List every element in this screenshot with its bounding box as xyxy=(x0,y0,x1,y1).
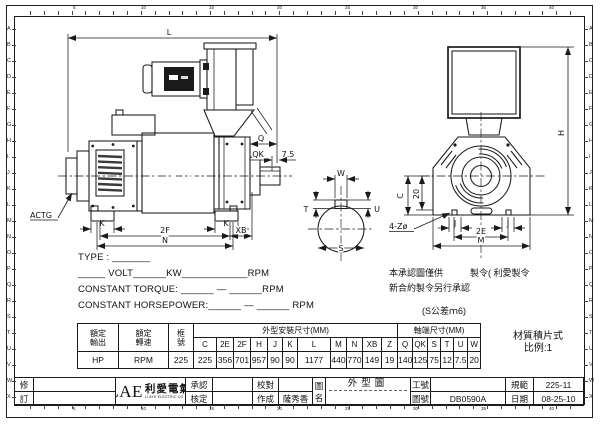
made-by-label: 作成 xyxy=(253,392,279,406)
value-c: 225 xyxy=(194,352,217,369)
ruler-tick xyxy=(556,405,557,409)
dim-label-7-5: 7.5 xyxy=(282,150,295,159)
shaft-cross-section: W T U S xyxy=(303,169,381,262)
ruler-tick xyxy=(584,285,588,286)
ruler-tick xyxy=(432,405,433,409)
ruler-tick xyxy=(182,11,183,15)
ruler-number: 25 xyxy=(345,406,350,411)
ruler-tick xyxy=(584,45,588,46)
header-rated-output: 額定 輸出 xyxy=(78,324,119,352)
ruler-letter: E xyxy=(589,90,593,96)
ruler-letter: R xyxy=(589,298,593,304)
ruler-tick xyxy=(12,381,16,382)
ruler-tick xyxy=(584,125,588,126)
ruler-tick xyxy=(44,11,45,15)
ruler-letter: I xyxy=(589,154,591,160)
ruler-tick xyxy=(12,45,16,46)
logo-lae: LAE xyxy=(116,383,143,400)
title-block: 修 LAE 利愛電氣 LI AYE ELECTRIC CO.,LTD 承認 校對… xyxy=(14,377,584,406)
ruler-tick xyxy=(12,93,16,94)
ruler-tick xyxy=(252,11,253,15)
col-2e: 2E xyxy=(217,338,234,352)
spec-line-type: TYPE : _______ xyxy=(78,252,151,263)
ruler-number: 20 xyxy=(277,5,282,10)
drawing-no-label: 圖號 xyxy=(411,392,431,406)
ruler-tick xyxy=(584,237,588,238)
dim-label-4z: 4-Zø xyxy=(389,222,407,231)
ruler-tick xyxy=(570,11,571,15)
ruler-tick xyxy=(487,405,488,409)
ruler-tick xyxy=(12,61,16,62)
ruler-tick xyxy=(459,11,460,15)
ruler-letter: B xyxy=(7,42,11,48)
col-k: K xyxy=(283,338,298,352)
col-z: Z xyxy=(382,338,398,352)
ruler-tick xyxy=(501,405,502,409)
ruler-letter: U xyxy=(7,346,11,352)
value-m: 440 xyxy=(331,352,347,369)
ruler-tick xyxy=(515,405,516,409)
revision-field-bottom xyxy=(34,392,116,406)
approval-note-line1: 本承認圖僅供 製令( 利愛製令 xyxy=(389,266,530,279)
ruler-letter: J xyxy=(589,170,592,176)
header-outline-dims: 外型安裝尺寸(MM) xyxy=(194,324,398,338)
col-h: H xyxy=(251,338,268,352)
tolerance-note: (S公差ｍ6) xyxy=(422,304,466,317)
value-h: 957 xyxy=(251,352,268,369)
col-t: T xyxy=(441,338,454,352)
spec-line-constant-horsepower: CONSTANT HORSEPOWER:______ — ______ RPM xyxy=(78,300,314,311)
dim-label-j-left: J xyxy=(453,219,456,228)
terminal-box xyxy=(112,115,155,135)
ruler-tick xyxy=(570,405,571,409)
spec-line-volt-kw-rpm: _____ VOLT______KW____________RPM xyxy=(78,268,269,279)
ruler-tick xyxy=(362,405,363,409)
col-qk: QK xyxy=(413,338,428,352)
ruler-tick xyxy=(99,405,100,409)
ruler-tick xyxy=(404,11,405,15)
actg-label: ACTG xyxy=(30,211,52,220)
ruler-tick xyxy=(12,29,16,30)
company-logo: LAE 利愛電氣 LI AYE ELECTRIC CO.,LTD xyxy=(116,378,186,406)
value-l: 1177 xyxy=(298,352,331,369)
ruler-tick xyxy=(321,405,322,409)
ruler-letter: A xyxy=(589,26,593,32)
ruler-tick xyxy=(238,405,239,409)
ruler-letter: F xyxy=(589,106,592,112)
approval-note-line2: 新合約製令另行承認 xyxy=(389,281,470,294)
ruler-tick xyxy=(459,405,460,409)
ruler-tick xyxy=(127,405,128,409)
ruler-letter: B xyxy=(589,42,593,48)
ruler-number: 40 xyxy=(549,5,554,10)
drawing-name-value: 外型圖 xyxy=(326,378,410,390)
ruler-tick xyxy=(404,405,405,409)
ruler-letter: O xyxy=(589,250,593,256)
ruler-letter: G xyxy=(589,122,593,128)
value-k: 90 xyxy=(283,352,298,369)
stator-laminations xyxy=(142,133,214,213)
ruler-tick xyxy=(584,333,588,334)
ruler-tick xyxy=(418,11,419,15)
revision-label-top: 修 xyxy=(15,378,34,392)
foot-hole-right xyxy=(506,210,511,215)
ruler-tick xyxy=(584,365,588,366)
ruler-letter: F xyxy=(7,106,10,112)
ruler-tick xyxy=(169,405,170,409)
ruler-tick xyxy=(376,405,377,409)
ruler-tick xyxy=(584,109,588,110)
ruler-tick xyxy=(584,141,588,142)
ruler-tick xyxy=(12,125,16,126)
fan-motor-cap xyxy=(143,65,152,93)
ruler-tick xyxy=(556,11,557,15)
proof-label: 校對 xyxy=(253,378,279,392)
ruler-tick xyxy=(542,405,543,409)
ruler-tick xyxy=(584,317,588,318)
logo-company-name-en: LI AYE ELECTRIC CO.,LTD xyxy=(145,395,186,399)
ruler-tick xyxy=(515,11,516,15)
ruler-tick xyxy=(12,285,16,286)
ruler-tick xyxy=(30,11,31,15)
ruler-tick xyxy=(584,253,588,254)
ruler-number: 35 xyxy=(481,5,486,10)
col-m: M xyxy=(331,338,347,352)
ruler-letter: D xyxy=(589,74,593,80)
col-w: W xyxy=(468,338,481,352)
ruler-tick xyxy=(113,11,114,15)
vent-louvers xyxy=(98,156,122,191)
ruler-tick xyxy=(224,405,225,409)
ruler-tick xyxy=(252,405,253,409)
ruler-tick xyxy=(12,141,16,142)
ruler-tick xyxy=(487,11,488,15)
col-q: Q xyxy=(398,338,413,352)
ruler-number: 35 xyxy=(481,406,486,411)
ruler-tick xyxy=(12,205,16,206)
material-note: 材質積片式 xyxy=(498,331,578,343)
ruler-tick xyxy=(265,11,266,15)
ruler-tick xyxy=(12,301,16,302)
ruler-tick xyxy=(390,405,391,409)
ruler-tick xyxy=(44,405,45,409)
dim-label-k-right: K xyxy=(223,219,229,228)
value-2e: 356 xyxy=(217,352,234,369)
ruler-tick xyxy=(307,405,308,409)
value-n: 770 xyxy=(347,352,363,369)
spec-label: 規範 xyxy=(506,378,534,392)
spec-line-constant-torque: CONSTANT TORQUE: ______ — ______RPM xyxy=(78,284,284,295)
value-t: 12 xyxy=(441,352,454,369)
ruler-letter: H xyxy=(7,138,11,144)
drawing-name-label: 圖 名 xyxy=(313,378,326,406)
ruler-tick xyxy=(12,253,16,254)
dim-label-l: L xyxy=(167,28,172,37)
check-label: 核定 xyxy=(186,392,213,406)
dim-label-m: M xyxy=(478,236,485,245)
ruler-tick xyxy=(584,189,588,190)
col-2f: 2F xyxy=(234,338,251,352)
ruler-tick xyxy=(72,11,73,15)
ruler-letter: M xyxy=(589,218,594,224)
ruler-tick xyxy=(307,11,308,15)
dim-label-2f: 2F xyxy=(160,226,170,235)
ruler-letter: D xyxy=(7,74,11,80)
ruler-tick xyxy=(99,11,100,15)
dim-label-q: Q xyxy=(258,134,264,143)
ruler-letter: V xyxy=(589,362,593,368)
made-by-value: 薩秀香 xyxy=(279,392,313,406)
ruler-tick xyxy=(12,157,16,158)
date-label: 日期 xyxy=(506,392,534,406)
ruler-tick xyxy=(349,11,350,15)
ruler-tick xyxy=(584,61,588,62)
side-view-dimensions: L Q QK 7.5 ACTG K K 2F xyxy=(30,28,296,250)
ruler-tick xyxy=(362,11,363,15)
ruler-tick xyxy=(584,221,588,222)
ruler-tick xyxy=(113,405,114,409)
dim-label-qk: QK xyxy=(252,150,264,159)
ruler-letter: V xyxy=(7,362,11,368)
ruler-tick xyxy=(127,11,128,15)
revision-field-top xyxy=(34,378,116,392)
ruler-tick xyxy=(321,11,322,15)
ruler-letter: K xyxy=(7,186,11,192)
ruler-tick xyxy=(446,405,447,409)
ruler-tick xyxy=(155,11,156,15)
ruler-number: 40 xyxy=(549,406,554,411)
ruler-tick xyxy=(12,77,16,78)
approve-label: 承認 xyxy=(186,378,213,392)
ruler-number: 25 xyxy=(345,5,350,10)
value-z: 19 xyxy=(382,352,398,369)
ruler-tick xyxy=(473,11,474,15)
ruler-tick xyxy=(58,405,59,409)
ruler-number: 30 xyxy=(413,5,418,10)
ruler-tick xyxy=(529,405,530,409)
col-l: L xyxy=(298,338,331,352)
ruler-tick xyxy=(30,405,31,409)
ruler-tick xyxy=(432,11,433,15)
col-n: N xyxy=(347,338,363,352)
dim-label-s: S xyxy=(338,244,343,253)
ruler-tick xyxy=(584,157,588,158)
ruler-tick xyxy=(85,405,86,409)
ruler-letter: R xyxy=(7,298,11,304)
dim-label-2e: 2E xyxy=(476,227,486,236)
dim-label-t: T xyxy=(303,205,309,214)
ruler-tick xyxy=(12,365,16,366)
dim-label-j-right: J xyxy=(506,219,509,228)
ruler-letter: H xyxy=(589,138,593,144)
ruler-tick xyxy=(584,77,588,78)
dim-label-n: N xyxy=(162,236,168,245)
ruler-tick xyxy=(210,11,211,15)
value-j: 90 xyxy=(268,352,283,369)
dim-label-w: W xyxy=(337,169,345,178)
ruler-tick xyxy=(169,11,170,15)
ruler-number: 5 xyxy=(73,406,76,411)
header-frame-no: 框 號 xyxy=(169,324,194,352)
drawing-name-divider xyxy=(329,390,407,391)
ruler-letter: T xyxy=(7,330,10,336)
ruler-tick xyxy=(584,397,588,398)
ruler-number: 10 xyxy=(141,406,146,411)
ruler-tick xyxy=(224,11,225,15)
ruler-tick xyxy=(12,173,16,174)
ruler-letter: P xyxy=(589,266,593,272)
ruler-tick xyxy=(584,29,588,30)
value-qk: 125 xyxy=(413,352,428,369)
ruler-tick xyxy=(293,405,294,409)
ruler-tick xyxy=(12,269,16,270)
ruler-letter: E xyxy=(7,90,11,96)
ruler-tick xyxy=(85,11,86,15)
value-u: 7.5 xyxy=(454,352,468,369)
logo-company-name: 利愛電氣 xyxy=(145,384,186,395)
ruler-tick xyxy=(141,11,142,15)
ruler-tick xyxy=(529,11,530,15)
ruler-tick xyxy=(12,333,16,334)
ruler-letter: L xyxy=(7,202,10,208)
ruler-letter: S xyxy=(7,314,11,320)
value-xb: 149 xyxy=(363,352,382,369)
ruler-letter: U xyxy=(589,346,593,352)
ruler-number: 15 xyxy=(209,5,214,10)
bracket-bolts xyxy=(226,143,244,204)
ruler-tick xyxy=(473,405,474,409)
ruler-tick xyxy=(584,381,588,382)
ruler-tick xyxy=(238,11,239,15)
ruler-tick xyxy=(542,11,543,15)
value-rated-output: HP xyxy=(78,352,119,369)
ruler-tick xyxy=(584,269,588,270)
scale-note: 比例:1 xyxy=(498,343,578,355)
ruler-number: 15 xyxy=(209,406,214,411)
dim-label-20: 20 xyxy=(412,189,421,199)
header-rated-speed: 額定 轉速 xyxy=(119,324,169,352)
revision-label-bottom: 訂 xyxy=(15,392,34,406)
ruler-letter: N xyxy=(589,234,593,240)
dim-label-c: C xyxy=(396,193,405,199)
ruler-tick xyxy=(182,405,183,409)
ruler-number: 5 xyxy=(73,5,76,10)
filter-box xyxy=(448,47,520,118)
ruler-tick xyxy=(58,11,59,15)
value-w: 20 xyxy=(468,352,481,369)
ruler-tick xyxy=(584,205,588,206)
ruler-tick xyxy=(12,237,16,238)
ruler-tick xyxy=(293,11,294,15)
motor-side-view xyxy=(58,110,292,221)
ruler-tick xyxy=(12,109,16,110)
ruler-letter: C xyxy=(7,58,11,64)
date-value: 08-25-10 xyxy=(534,392,584,406)
ruler-tick xyxy=(196,11,197,15)
col-xb: XB xyxy=(363,338,382,352)
ruler-letter: X xyxy=(7,394,11,400)
value-rated-speed: RPM xyxy=(119,352,169,369)
foot-hole-left xyxy=(452,210,457,215)
drawing-name-field: 外型圖 xyxy=(326,378,411,406)
drawing-sheet: L Q QK 7.5 ACTG K K 2F xyxy=(0,0,600,424)
ruler-tick xyxy=(196,405,197,409)
ruler-letter: C xyxy=(589,58,593,64)
ruler-tick xyxy=(335,405,336,409)
dim-label-xb: XB xyxy=(236,226,247,235)
ruler-tick xyxy=(279,11,280,15)
ruler-letter: J xyxy=(7,170,10,176)
ruler-letter: K xyxy=(589,186,593,192)
ruler-tick xyxy=(390,11,391,15)
col-s: S xyxy=(428,338,441,352)
col-j: J xyxy=(268,338,283,352)
ruler-letter: Q xyxy=(589,282,593,288)
ruler-tick xyxy=(584,301,588,302)
ruler-letter: W xyxy=(589,378,594,384)
value-frame-no: 225 xyxy=(169,352,194,369)
ruler-number: 30 xyxy=(413,406,418,411)
ruler-letter: T xyxy=(589,330,592,336)
material-scale-note: 材質積片式 比例:1 xyxy=(498,331,578,355)
ruler-tick xyxy=(584,173,588,174)
col-c: C xyxy=(194,338,217,352)
ruler-tick xyxy=(446,11,447,15)
blower-assembly xyxy=(143,43,272,136)
ruler-tick xyxy=(335,11,336,15)
ruler-letter: S xyxy=(589,314,593,320)
work-no-field xyxy=(431,378,506,392)
col-u: U xyxy=(454,338,468,352)
ruler-tick xyxy=(376,11,377,15)
ruler-tick xyxy=(584,349,588,350)
ruler-tick xyxy=(265,405,266,409)
ruler-letter: I xyxy=(7,154,9,160)
ruler-letter: L xyxy=(589,202,592,208)
ruler-number: 10 xyxy=(141,5,146,10)
ruler-tick xyxy=(12,221,16,222)
ruler-tick xyxy=(12,317,16,318)
ruler-tick xyxy=(584,93,588,94)
ruler-tick xyxy=(12,349,16,350)
value-q: 140 xyxy=(398,352,413,369)
value-s: 75 xyxy=(428,352,441,369)
ruler-tick xyxy=(501,11,502,15)
proof-field xyxy=(279,378,313,392)
value-2f: 701 xyxy=(234,352,251,369)
dim-label-h: H xyxy=(557,130,566,136)
spec-value: 225-11 xyxy=(534,378,584,392)
header-shaft-dims: 軸端尺寸(MM) xyxy=(398,324,481,338)
check-field xyxy=(213,392,253,406)
ruler-letter: N xyxy=(7,234,11,240)
ruler-letter: A xyxy=(7,26,11,32)
ruler-tick xyxy=(155,405,156,409)
dimension-table: 額定 輸出 額定 轉速 框 號 外型安裝尺寸(MM) 軸端尺寸(MM) C 2E… xyxy=(77,323,481,369)
ruler-number: 20 xyxy=(277,406,282,411)
ruler-tick xyxy=(12,189,16,190)
approve-field xyxy=(213,378,253,392)
dim-label-u: U xyxy=(374,205,380,214)
drawing-no-value: DB0590A xyxy=(431,392,506,406)
ruler-letter: P xyxy=(7,266,11,272)
work-no-label: 工號 xyxy=(411,378,431,392)
ruler-letter: X xyxy=(589,394,593,400)
ruler-tick xyxy=(12,397,16,398)
